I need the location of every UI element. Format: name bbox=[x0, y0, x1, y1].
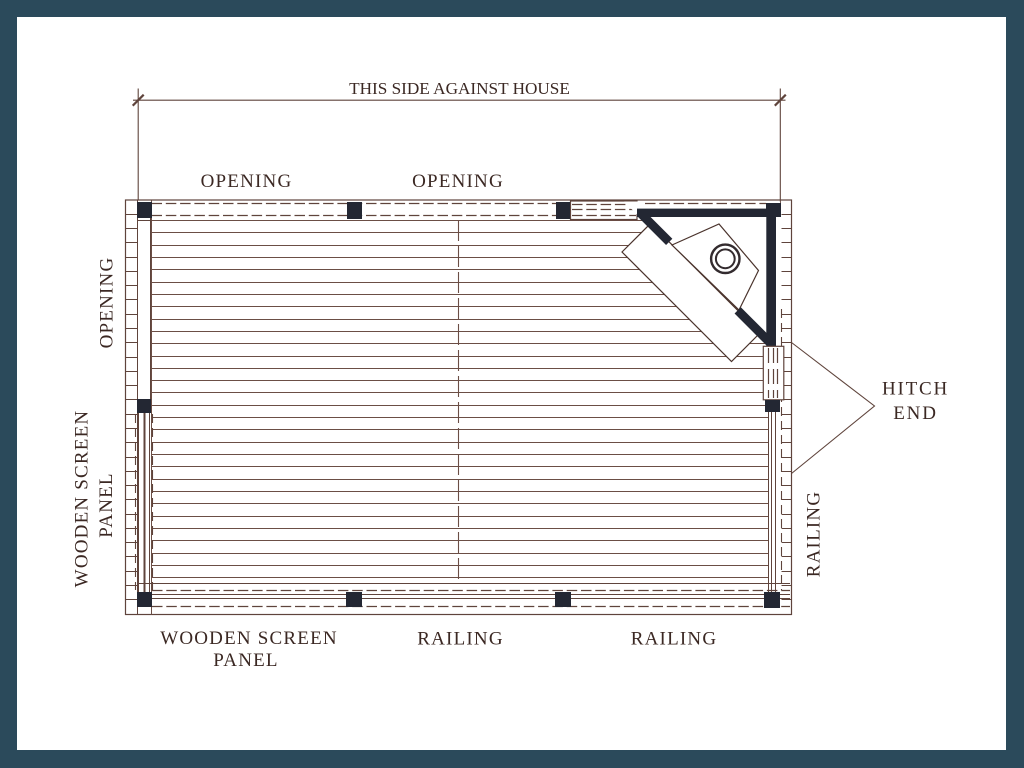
svg-text:HITCH: HITCH bbox=[882, 379, 949, 400]
svg-text:WOODEN SCREEN: WOODEN SCREEN bbox=[160, 628, 338, 649]
svg-text:OPENING: OPENING bbox=[97, 257, 118, 349]
svg-text:THIS SIDE AGAINST HOUSE: THIS SIDE AGAINST HOUSE bbox=[349, 79, 570, 98]
svg-text:WOODEN SCREEN: WOODEN SCREEN bbox=[72, 410, 93, 588]
svg-text:RAILING: RAILING bbox=[804, 491, 825, 578]
svg-text:RAILING: RAILING bbox=[417, 629, 504, 650]
svg-text:END: END bbox=[893, 403, 937, 424]
svg-text:RAILING: RAILING bbox=[631, 629, 718, 650]
svg-text:OPENING: OPENING bbox=[201, 171, 293, 192]
svg-text:PANEL: PANEL bbox=[213, 650, 278, 671]
svg-text:PANEL: PANEL bbox=[96, 472, 117, 537]
svg-text:OPENING: OPENING bbox=[412, 171, 504, 192]
